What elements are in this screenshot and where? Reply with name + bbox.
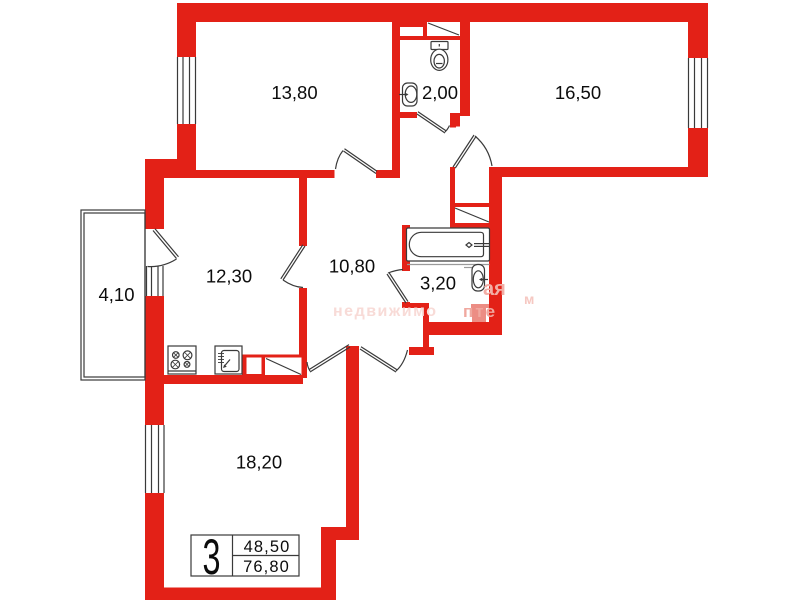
svg-text:ая: ая [483,278,506,300]
svg-text:13,80: 13,80 [271,82,317,103]
svg-text:м: м [524,291,534,307]
svg-text:76,80: 76,80 [243,558,290,576]
svg-text:3,20: 3,20 [420,273,456,294]
svg-text:недвижимо: недвижимо [333,303,437,320]
svg-text:12,30: 12,30 [206,266,252,287]
svg-text:10,80: 10,80 [329,256,375,277]
svg-text:16,50: 16,50 [555,82,601,103]
svg-text:пте: пте [463,302,497,321]
svg-text:4,10: 4,10 [98,284,134,305]
svg-text:48,50: 48,50 [244,538,291,556]
svg-text:2,00: 2,00 [422,82,458,103]
svg-text:18,20: 18,20 [236,452,282,473]
svg-text:3: 3 [203,529,221,585]
